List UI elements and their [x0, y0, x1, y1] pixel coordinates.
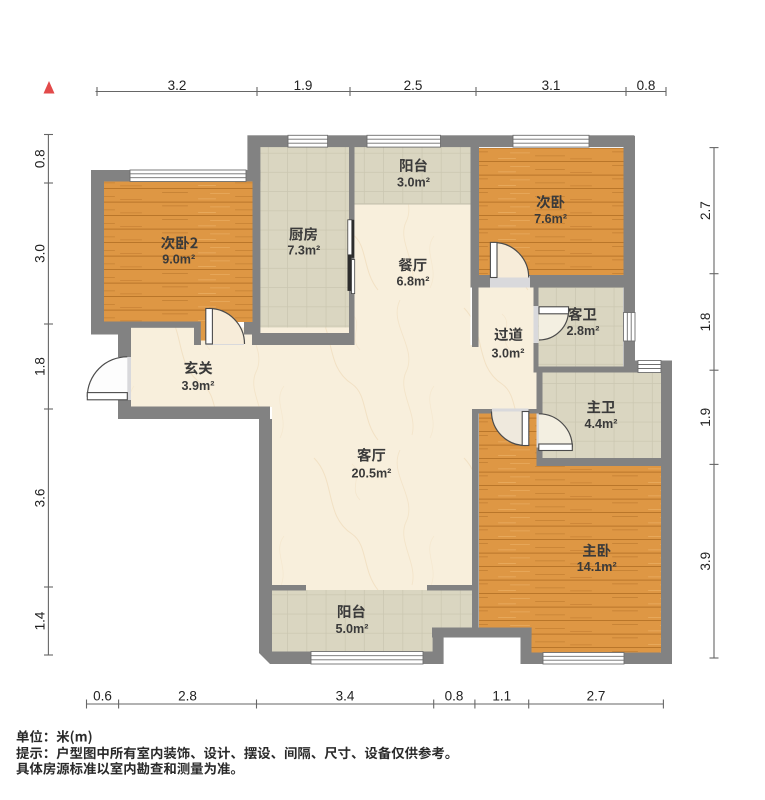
svg-text:2.8m²: 2.8m²	[567, 324, 600, 338]
svg-text:1.8: 1.8	[33, 357, 48, 376]
svg-text:1.1: 1.1	[492, 689, 511, 704]
svg-text:2.5: 2.5	[404, 78, 423, 93]
svg-text:9.0m²: 9.0m²	[162, 253, 195, 267]
svg-text:1.4: 1.4	[33, 611, 48, 630]
svg-text:3.0: 3.0	[33, 244, 48, 263]
svg-text:3.2: 3.2	[168, 78, 187, 93]
svg-text:0.8: 0.8	[445, 689, 464, 704]
svg-text:7.6m²: 7.6m²	[534, 212, 567, 226]
svg-text:3.9m²: 3.9m²	[182, 379, 215, 393]
svg-text:3.4: 3.4	[336, 689, 355, 704]
svg-text:6.8m²: 6.8m²	[397, 275, 430, 289]
svg-text:3.1: 3.1	[542, 78, 561, 93]
svg-text:0.8: 0.8	[33, 149, 48, 168]
svg-text:3.6: 3.6	[33, 489, 48, 508]
svg-text:2.8: 2.8	[178, 689, 197, 704]
svg-text:0.8: 0.8	[637, 78, 656, 93]
svg-text:4.4m²: 4.4m²	[585, 417, 618, 431]
svg-text:1.9: 1.9	[294, 78, 313, 93]
svg-text:2.7: 2.7	[698, 201, 713, 220]
svg-text:3.9: 3.9	[698, 552, 713, 571]
svg-text:1.8: 1.8	[698, 313, 713, 332]
svg-text:2.7: 2.7	[587, 689, 606, 704]
svg-text:7.3m²: 7.3m²	[287, 244, 320, 258]
svg-text:14.1m²: 14.1m²	[577, 560, 617, 574]
svg-text:0.6: 0.6	[93, 689, 112, 704]
svg-text:1.9: 1.9	[698, 408, 713, 427]
svg-text:5.0m²: 5.0m²	[336, 622, 369, 636]
svg-text:20.5m²: 20.5m²	[351, 467, 391, 481]
svg-text:3.0m²: 3.0m²	[397, 176, 430, 190]
svg-text:3.0m²: 3.0m²	[492, 347, 525, 361]
